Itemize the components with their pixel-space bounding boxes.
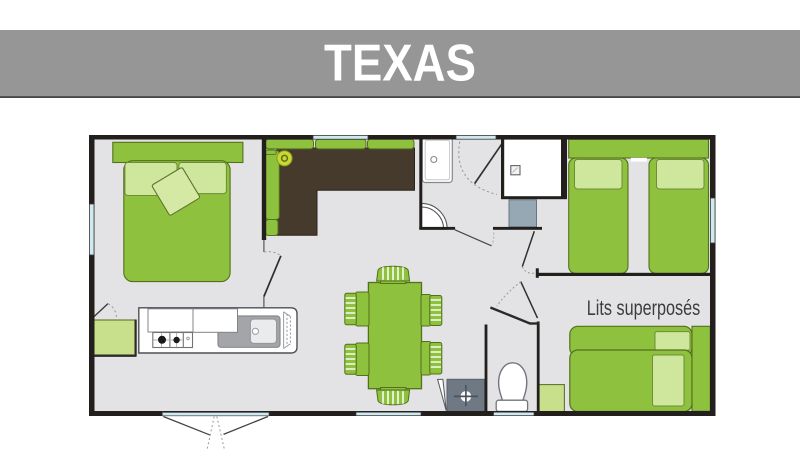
svg-text:TEXAS: TEXAS xyxy=(324,35,476,93)
svg-text:Lits superposés: Lits superposés xyxy=(587,297,701,320)
